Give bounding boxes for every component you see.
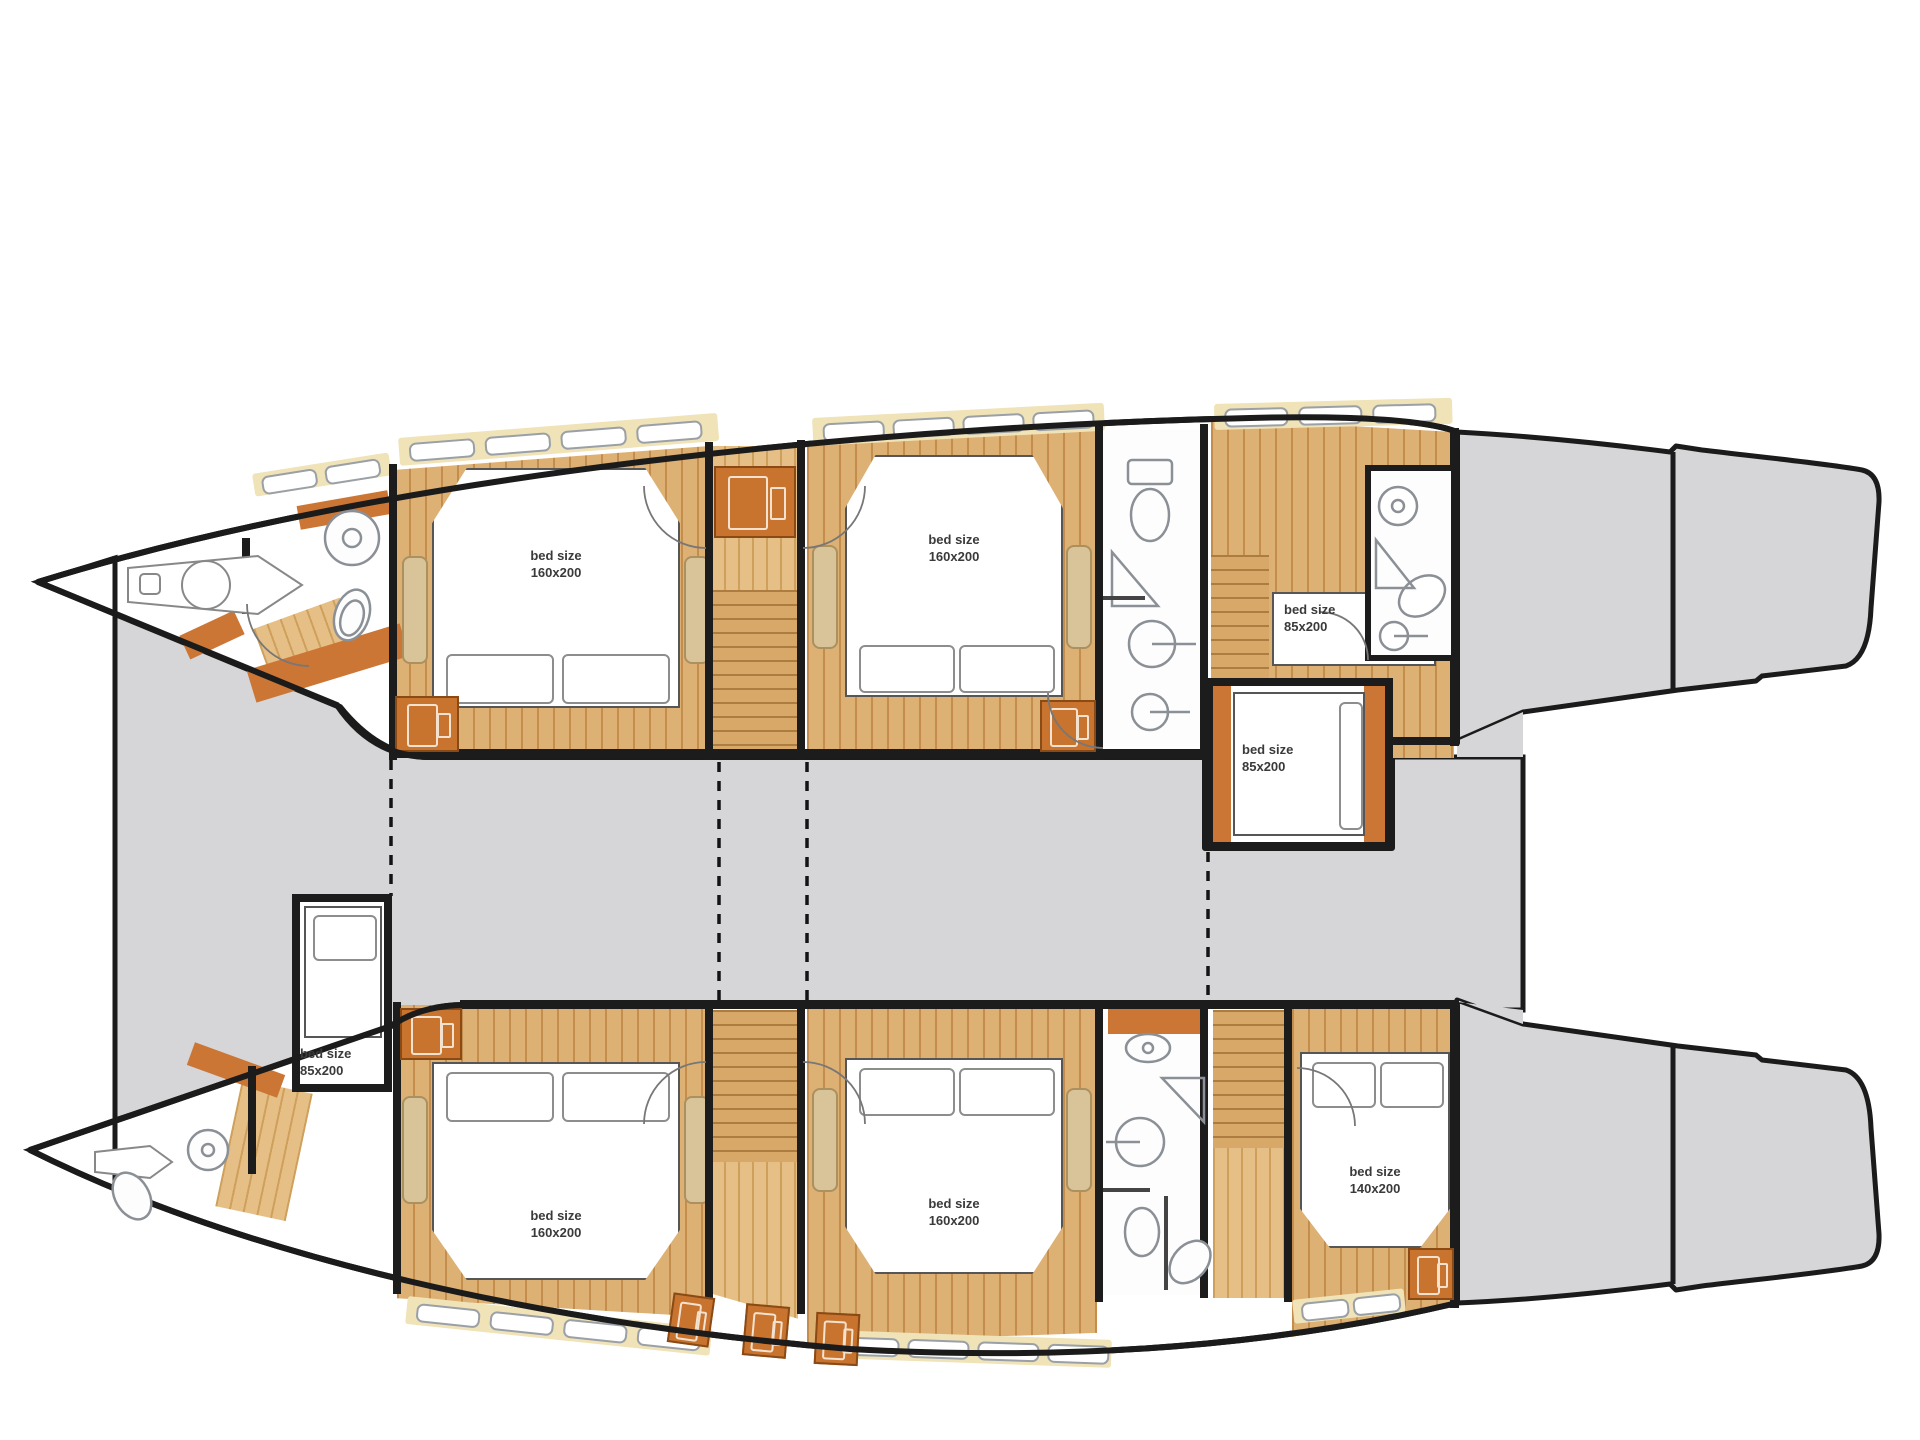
wardrobe-icon <box>400 1008 462 1060</box>
bed-size-label: bed size 140x200 <box>1315 1164 1435 1198</box>
window-icon <box>1372 403 1436 424</box>
wall <box>460 1000 1458 1009</box>
window-icon <box>1224 407 1288 428</box>
window-icon <box>892 417 955 439</box>
wall <box>242 538 250 614</box>
window-icon <box>1300 1298 1350 1322</box>
pillow-icon <box>446 1072 554 1122</box>
bed-size-label: bed size 160x200 <box>501 548 611 582</box>
stbd-staircase <box>710 1010 798 1165</box>
bedside-bench <box>812 1088 838 1192</box>
bed-160x200-port-fwd <box>432 468 680 708</box>
window-icon <box>977 1341 1040 1362</box>
bedside-bench <box>812 545 838 649</box>
port-single-room-left <box>1213 686 1231 842</box>
pillow-icon <box>562 1072 670 1122</box>
window-icon <box>484 432 551 456</box>
pillow-icon <box>446 654 554 704</box>
bed-160x200-stbd-fwd <box>432 1062 680 1280</box>
wall <box>1095 426 1103 760</box>
port-staircase <box>710 590 798 758</box>
bedside-bench <box>402 1096 428 1204</box>
wall <box>1095 1002 1103 1302</box>
pillow-icon <box>1380 1062 1444 1108</box>
bed-140x200-stbd-aft <box>1300 1052 1450 1248</box>
pillow-icon <box>1410 601 1432 659</box>
port-aft-stairs <box>1211 555 1269 680</box>
window-icon <box>907 1339 970 1360</box>
window-icon <box>1352 1293 1402 1317</box>
bed-85x200-stbd-fwd <box>304 906 382 1038</box>
wall <box>1392 737 1458 745</box>
pillow-icon <box>1312 1062 1376 1108</box>
pillow-icon <box>859 1068 955 1116</box>
floor-plan: bed size 160x200 bed size 160x200 bed si… <box>0 0 1920 1440</box>
window-icon <box>415 1303 481 1329</box>
wardrobe-icon <box>667 1292 716 1347</box>
window-icon <box>1298 405 1362 426</box>
wardrobe-icon <box>1040 700 1096 752</box>
wardrobe-icon <box>1408 1248 1454 1300</box>
wall <box>1450 428 1459 746</box>
window-icon <box>408 438 475 462</box>
bed-size-label: bed size 85x200 <box>300 1046 384 1080</box>
pillow-icon <box>959 645 1055 693</box>
bed-160x200-port-mid <box>845 455 1063 697</box>
pillow-icon <box>959 1068 1055 1116</box>
wall <box>797 1002 805 1314</box>
bedside-bench <box>1066 1088 1092 1192</box>
bedside-bench <box>1066 545 1092 649</box>
window-icon <box>636 420 703 444</box>
window-icon <box>1047 1344 1110 1365</box>
stbd-aft-staircase <box>1213 1010 1285 1150</box>
pillow-icon <box>313 915 377 961</box>
stbd-bath-top-cabinet <box>1108 1008 1202 1034</box>
window-icon <box>822 420 885 442</box>
pillow-icon <box>1339 702 1363 830</box>
wall <box>705 442 713 760</box>
wardrobe-icon <box>742 1303 790 1359</box>
port-aft-deck <box>1457 432 1879 741</box>
pillow-icon <box>562 654 670 704</box>
wall <box>1200 1002 1208 1298</box>
wardrobe-icon <box>395 696 459 752</box>
wall <box>705 1002 713 1308</box>
wall <box>248 1066 256 1174</box>
port-bathroom-floor <box>1103 430 1203 746</box>
bed-size-label: bed size 160x200 <box>899 532 1009 566</box>
pillow-icon <box>859 645 955 693</box>
wall <box>1284 1002 1292 1302</box>
stbd-aft-stair-landing <box>1213 1148 1285 1298</box>
wardrobe-icon <box>714 466 796 538</box>
wall <box>1200 424 1208 760</box>
window-icon <box>489 1311 555 1337</box>
window-icon <box>560 426 627 450</box>
window-icon <box>1032 409 1095 431</box>
wall <box>797 440 805 760</box>
bed-size-label: bed size 85x200 <box>1284 602 1364 636</box>
bedside-bench <box>402 556 428 664</box>
bed-size-label: bed size 85x200 <box>1242 742 1322 776</box>
stbd-aft-deck <box>1457 1000 1879 1303</box>
bed-size-label: bed size 160x200 <box>899 1196 1009 1230</box>
stbd-bathroom-floor <box>1103 1005 1203 1295</box>
bed-size-label: bed size 160x200 <box>501 1208 611 1242</box>
port-single-room-right <box>1364 686 1385 842</box>
wardrobe-icon <box>814 1312 861 1366</box>
window-icon <box>563 1318 629 1344</box>
bed-160x200-stbd-mid <box>845 1058 1063 1274</box>
window-icon <box>962 413 1025 435</box>
